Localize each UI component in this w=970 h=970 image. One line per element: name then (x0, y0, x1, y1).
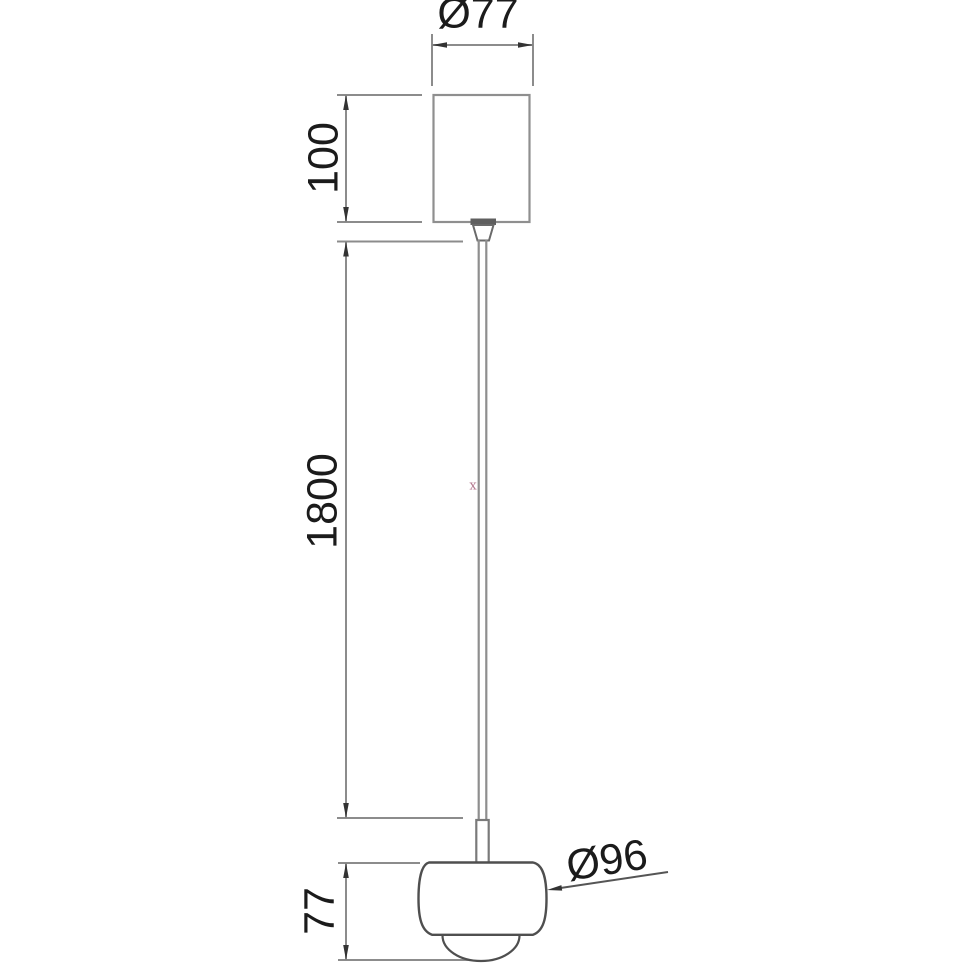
label-canopy-height: 100 (303, 122, 346, 194)
arrowhead-down (343, 207, 349, 222)
drawing-canvas: Ø77 100 1800 77 Ø96 x (0, 0, 970, 970)
label-head-height: 77 (299, 887, 342, 935)
cord-grip-body (473, 225, 494, 241)
cord-grip (471, 219, 497, 241)
lamp-dimension-linework (0, 0, 970, 970)
arrowhead-down (343, 803, 349, 818)
lamp-head-outline (419, 863, 547, 935)
dim-canopy-diameter (432, 34, 533, 86)
arrowhead-leader (547, 885, 562, 891)
label-cable-length: 1800 (302, 453, 345, 549)
arrowhead-left (432, 42, 447, 48)
arrowhead-up (343, 95, 349, 110)
arrowhead-down (343, 945, 349, 960)
suspension-cable (479, 240, 487, 822)
label-canopy-diameter: Ø77 (437, 0, 518, 36)
canopy-outline (434, 95, 530, 222)
arrowhead-up (343, 863, 349, 878)
dim-canopy-height (337, 95, 422, 222)
arrowhead-up (343, 242, 349, 257)
stray-x-marker: x (469, 480, 476, 493)
stem-sleeve (476, 820, 488, 863)
dim-cable-length (337, 242, 463, 819)
arrowhead-right (518, 42, 533, 48)
